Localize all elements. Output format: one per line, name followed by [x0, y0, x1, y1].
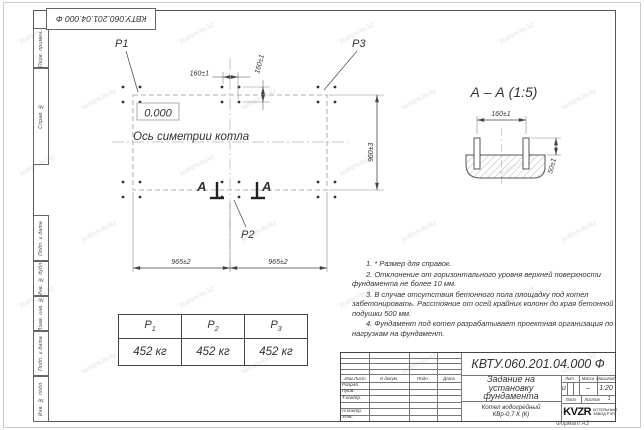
row-label-utv: Утв. — [342, 415, 369, 422]
scale-label: Масштаб — [597, 375, 615, 382]
sheets-label: Листов — [581, 395, 603, 403]
col-header-n-dokum: N докум. — [369, 374, 409, 382]
sheet-label: Лист — [561, 395, 581, 403]
dim-bottom-left-value: 965±2 — [171, 259, 191, 266]
lit-label: Лит. — [561, 375, 579, 382]
drawing-sheet: kotlam-kv.kzkotlam-kv.kzkotlam-kv.kzkotl… — [0, 0, 644, 430]
load-table-header-p2: P2 — [182, 315, 245, 339]
section-letter-left: А — [196, 179, 206, 194]
note-3: 3. В случае отсутствия бетонного пола пл… — [352, 290, 628, 319]
lit-value: и — [561, 382, 567, 395]
section-dim-height-extensions — [531, 138, 561, 155]
p2-label: P2 — [241, 229, 254, 241]
p2-leader — [234, 200, 246, 227]
mass-label: Масса — [579, 375, 597, 382]
load-table-value-row: 452 кг 452 кг 452 кг — [119, 339, 308, 366]
note-1: 1. * Размер для справок. — [352, 259, 628, 269]
load-p1-value: 452 кг — [119, 339, 182, 366]
kvzr-logo-subtext: КОТЕЛЬНЫЙ ЗАВОД РЭП — [593, 408, 617, 417]
dim-right-value: 960±3 — [368, 142, 375, 162]
symmetry-axis-label: Ось симетрии котла — [133, 131, 249, 143]
section-dim-width-value: 160±1 — [491, 111, 511, 118]
note-4: 4. Фундамент под котел разрабатывает про… — [352, 319, 628, 338]
title-block: Изм.Лист N докум. Подп. Дата Разраб. Про… — [340, 352, 616, 422]
section-letter-right: А — [261, 179, 271, 194]
p1-leader — [126, 51, 138, 92]
doc-number: КВТУ.060.201.04.000 Ф — [461, 353, 615, 375]
drawing-title: Задание на установку фундамента — [461, 375, 561, 401]
mass-value: – — [579, 382, 597, 395]
section-view-title: А – А (1:5) — [470, 84, 538, 100]
col-header-podp: Подп. — [409, 374, 437, 382]
p3-leader — [324, 51, 357, 90]
load-table: P1 P2 P3 452 кг 452 кг 452 кг — [118, 314, 308, 366]
load-p3-value: 452 кг — [245, 339, 308, 366]
level-mark: 0.000 — [144, 108, 172, 120]
section-dim-height-value: 50±1 — [547, 158, 558, 175]
dim-top-v-value: 160±1 — [254, 54, 266, 75]
dim-right-extensions — [329, 95, 384, 190]
technical-notes: 1. * Размер для справок. 2. Отклонение о… — [352, 259, 628, 339]
p1-label: P1 — [115, 38, 128, 50]
note-2: 2. Отклонение от горизонтального уровня … — [352, 270, 628, 289]
load-p2-value: 452 кг — [182, 339, 245, 366]
drawing-title-line3: фундамента — [483, 392, 538, 401]
dim-bottom-right-value: 965±2 — [268, 259, 288, 266]
p3-label: P3 — [352, 38, 366, 50]
product-name-line1: Котел водогрейный — [482, 404, 541, 411]
sheets-value: 1 — [603, 395, 615, 403]
load-table-header-p1: P1 — [119, 315, 182, 339]
dim-bottom-extensions — [133, 192, 327, 272]
foundation-plan: P1 P3 P2 0.000 Ось симетрии котла 160±1 … — [112, 38, 384, 272]
col-header-data: Дата — [437, 374, 461, 382]
format-label: Формат А3 — [556, 421, 589, 427]
product-name-line2: КВр-0,7 К (К) — [493, 411, 530, 418]
dim-top-h-value: 160±1 — [190, 71, 210, 78]
kvzr-logo-text: KVZR — [563, 406, 591, 418]
anchor-bolt-right — [523, 138, 529, 169]
load-table-header-p3: P3 — [245, 315, 308, 339]
anchor-bolt-left — [474, 138, 480, 169]
section-view-a-a: А – А (1:5) 160±1 50±1 — [466, 84, 561, 186]
kvzr-logo: KVZR КОТЕЛЬНЫЙ ЗАВОД РЭП — [563, 403, 615, 421]
dim-top-v-extensions — [243, 87, 270, 102]
scale-value: 1:20 — [597, 382, 615, 395]
load-table-header-row: P1 P2 P3 — [119, 315, 308, 339]
col-header-izm-list: Изм.Лист — [341, 374, 369, 382]
product-name: Котел водогрейный КВр-0,7 К (К) — [461, 401, 561, 421]
